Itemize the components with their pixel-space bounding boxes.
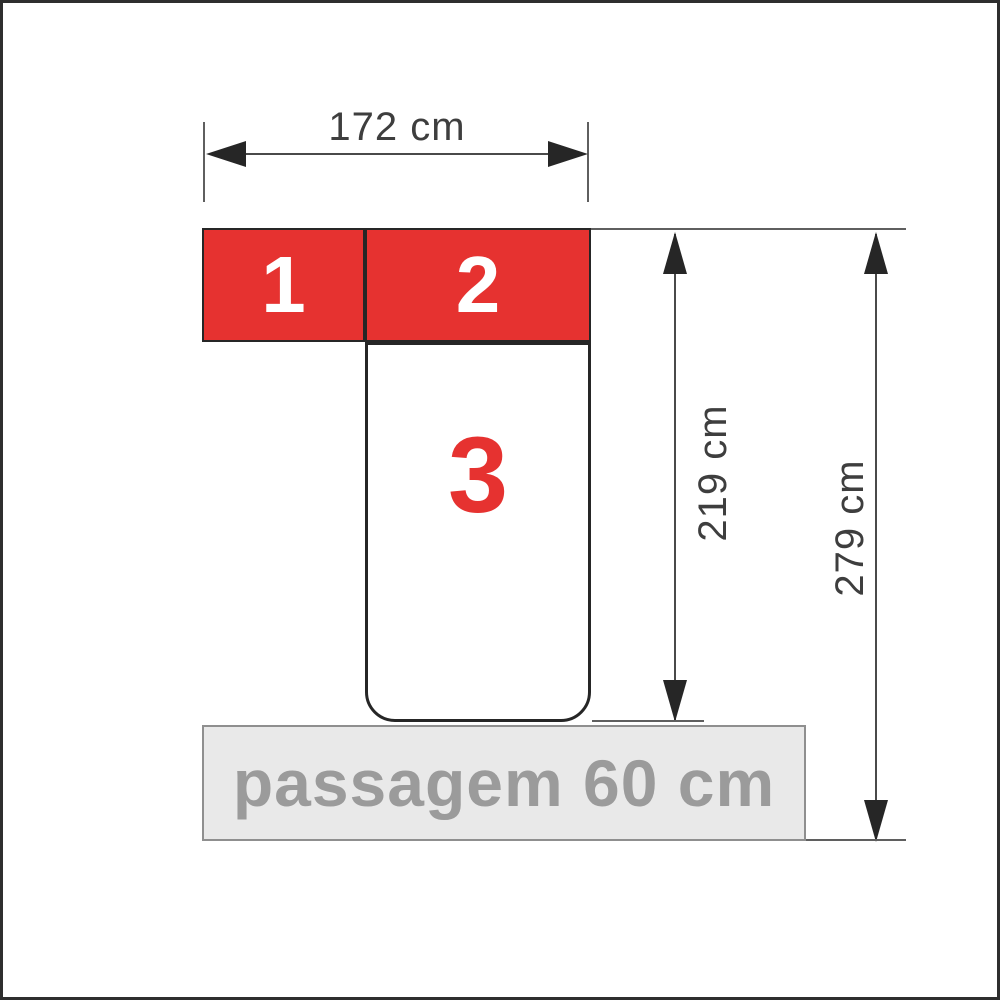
total-height-dimension-label: 279 cm: [828, 428, 870, 628]
width-extension-line-left: [203, 122, 205, 202]
inner-height-extension-line: [592, 720, 704, 722]
inner-height-dimension-line: [674, 234, 676, 720]
module-3-number: 3: [448, 421, 508, 529]
passage-label: passagem 60 cm: [233, 745, 775, 821]
width-dimension-line: [209, 153, 585, 155]
arrowhead-up-total-icon: [864, 232, 888, 274]
top-extension-line: [591, 228, 906, 230]
arrowhead-down-inner-icon: [663, 680, 687, 722]
module-1-number: 1: [261, 245, 306, 325]
arrowhead-left-icon: [206, 141, 246, 167]
total-height-dimension-line: [875, 234, 877, 840]
inner-height-dimension-label: 219 cm: [691, 373, 733, 573]
width-dimension-label: 172 cm: [297, 105, 497, 149]
arrowhead-up-inner-icon: [663, 232, 687, 274]
module-2-box: 2: [365, 228, 591, 342]
module-2-number: 2: [456, 245, 501, 325]
dimension-diagram: 172 cm 3 1 2 219 cm 279 cm passagem 60 c…: [0, 0, 1000, 1000]
passage-bar: passagem 60 cm: [202, 725, 806, 841]
module-3-box: 3: [365, 342, 591, 722]
module-1-box: 1: [202, 228, 365, 342]
arrowhead-right-icon: [548, 141, 588, 167]
arrowhead-down-total-icon: [864, 800, 888, 842]
total-height-extension-line: [806, 839, 906, 841]
